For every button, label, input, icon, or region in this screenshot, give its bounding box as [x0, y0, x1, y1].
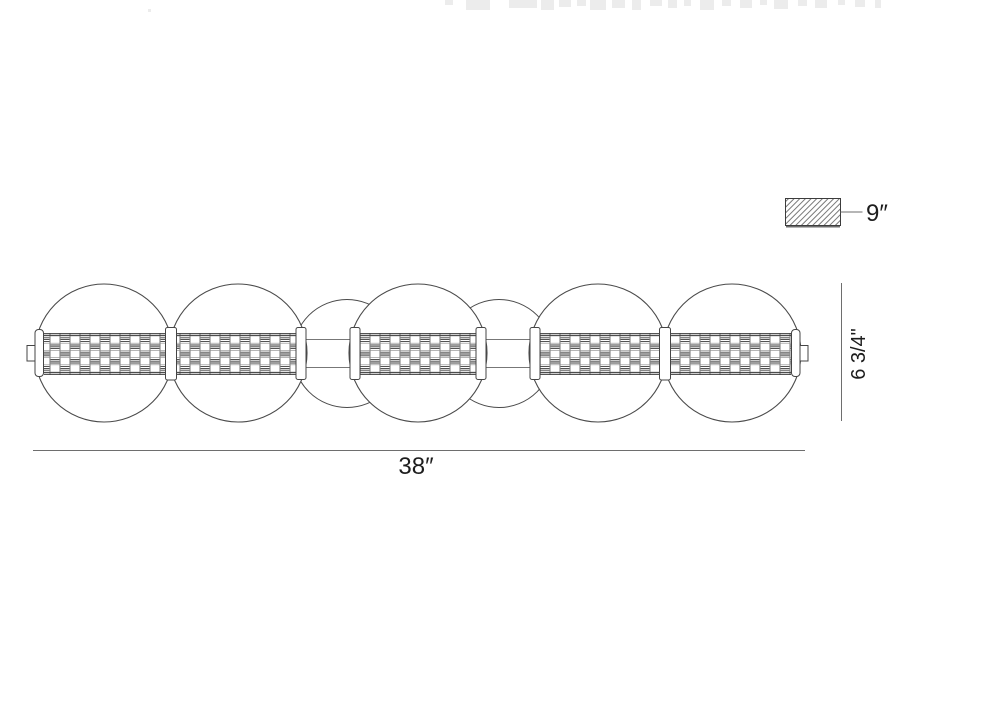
weave-bands [44, 333, 791, 375]
canopy-block [786, 199, 841, 226]
cropped-text-artifact [148, 0, 881, 12]
drawing-page: 38″ 6 3/4" 9″ [0, 0, 1000, 707]
socket-cup [530, 328, 540, 380]
weave-band [44, 333, 165, 375]
height-dimension: 6 3/4" [842, 283, 871, 421]
weave-band [540, 333, 659, 375]
weave-band [360, 333, 476, 375]
width-dimension-label: 38″ [398, 453, 434, 480]
depth-callout: 9″ [786, 199, 889, 228]
socket-cup [296, 328, 306, 380]
sphere-connector [660, 328, 671, 381]
mount-tab [800, 346, 808, 362]
socket-cup [476, 328, 486, 380]
weave-band [671, 333, 791, 375]
weave-band [177, 333, 296, 375]
depth-dimension-label: 9″ [866, 200, 888, 227]
end-cap [792, 330, 801, 377]
mount-tab [27, 346, 35, 362]
height-dimension-label: 6 3/4" [848, 328, 870, 380]
end-cap [35, 330, 44, 377]
fixture-elevation-drawing: 38″ 6 3/4" 9″ [0, 0, 1000, 707]
width-dimension: 38″ [33, 451, 805, 481]
sphere-connector [166, 328, 177, 381]
socket-cup [350, 328, 360, 380]
